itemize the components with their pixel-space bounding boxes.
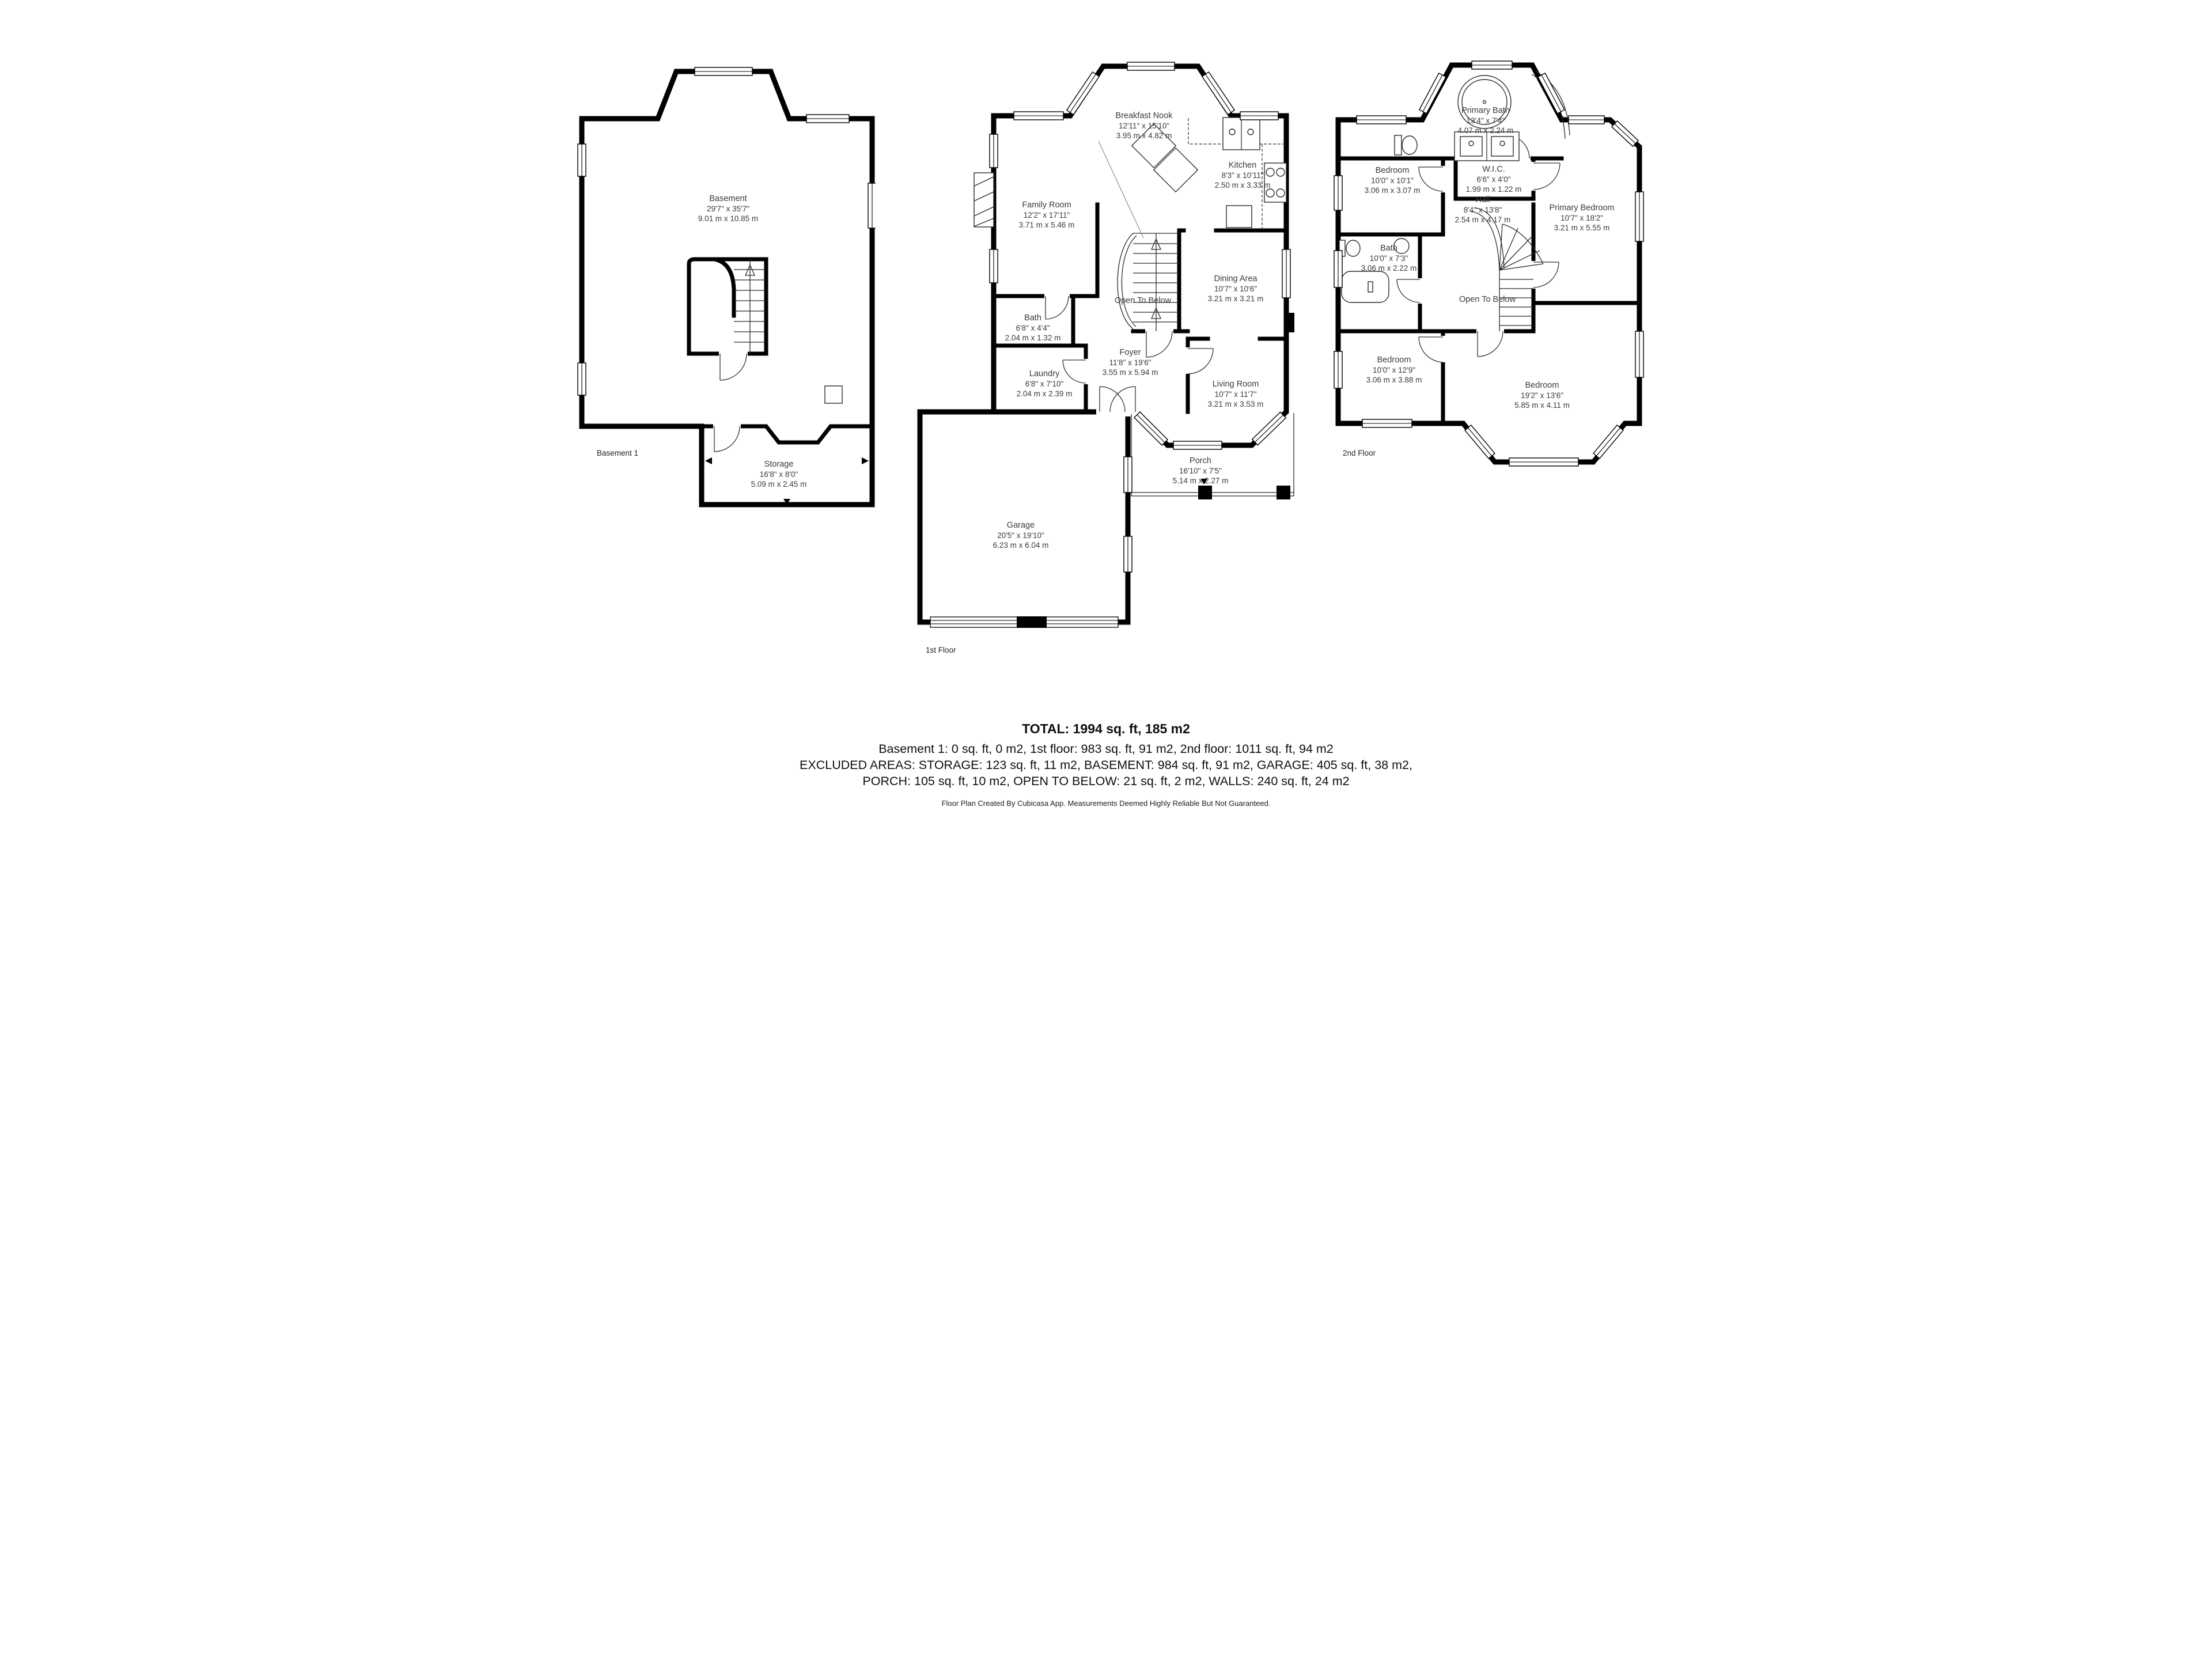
bath2-door-icon (1397, 278, 1423, 304)
toilet-icon (1395, 135, 1417, 155)
room-label-bath-1: Bath 6'8" x 4'4" 2.04 m x 1.32 m (1005, 313, 1061, 343)
room-label-hall: Hall 8'4" x 13'8" 2.54 m x 4.17 m (1455, 195, 1511, 225)
sump-box-icon (825, 386, 842, 403)
fireplace-icon (974, 173, 994, 227)
room-label-primary-bedroom: Primary Bedroom 10'7" x 18'2" 3.21 m x 5… (1550, 203, 1615, 233)
floor-areas-line: Basement 1: 0 sq. ft, 0 m2, 1st floor: 9… (553, 741, 1659, 757)
room-label-open-to-below-1: Open To Below (1115, 296, 1171, 306)
area-summary: TOTAL: 1994 sq. ft, 185 m2 Basement 1: 0… (553, 721, 1659, 808)
storage-door-icon (713, 422, 741, 452)
room-label-bedroom-3: Bedroom 19'2" x 13'6" 5.85 m x 4.11 m (1514, 381, 1570, 410)
room-label-foyer: Foyer 11'8" x 19'6" 3.55 m x 5.94 m (1103, 348, 1158, 377)
room-label-family-room: Family Room 12'2" x 17'11" 3.71 m x 5.46… (1019, 200, 1075, 230)
basement-stairs-icon (734, 259, 766, 354)
excluded-areas-line-1: EXCLUDED AREAS: STORAGE: 123 sq. ft, 11 … (553, 757, 1659, 773)
room-label-dining-area: Dining Area 10'7" x 10'6" 3.21 m x 3.21 … (1208, 274, 1264, 304)
room-label-primary-bath: Primary Bath 13'4" x 7'4" 4.07 m x 2.24 … (1458, 106, 1514, 135)
room-label-laundry: Laundry 6'8" x 7'10" 2.04 m x 2.39 m (1017, 369, 1073, 399)
basement-plan-drawing (576, 63, 876, 513)
total-area-line: TOTAL: 1994 sq. ft, 185 m2 (553, 721, 1659, 737)
basement-stair-door-icon (719, 350, 748, 380)
floorplan-canvas: Basement 29'7" x 35'7" 9.01 m x 10.85 m … (553, 0, 1659, 829)
room-label-open-to-below-2: Open To Below (1459, 295, 1516, 305)
front-double-door-icon (1096, 387, 1139, 416)
room-label-storage: Storage 16'8" x 8'0" 5.09 m x 2.45 m (751, 460, 807, 489)
room-label-bedroom-2: Bedroom 10'0" x 12'9" 3.06 m x 3.88 m (1366, 355, 1422, 385)
room-label-kitchen: Kitchen 8'3" x 10'11" 2.50 m x 3.33 m (1215, 161, 1271, 190)
wic-door-icon (1530, 162, 1560, 191)
excluded-areas-line-2: PORCH: 105 sq. ft, 10 m2, OPEN TO BELOW:… (553, 773, 1659, 789)
room-label-basement: Basement 29'7" x 35'7" 9.01 m x 10.85 m (698, 194, 758, 224)
bedroom-bl-door-icon (1419, 336, 1446, 362)
bedroom-tl-door-icon (1419, 166, 1446, 192)
room-label-garage: Garage 20'5" x 19'10" 6.23 m x 6.04 m (993, 521, 1049, 550)
double-vanity-icon (1455, 132, 1519, 161)
room-label-bath-2: Bath 10'0" x 7'3" 3.06 m x 2.22 m (1361, 244, 1417, 273)
room-label-bedroom-1: Bedroom 10'0" x 10'1" 3.06 m x 3.07 m (1365, 166, 1421, 195)
disclaimer-text: Floor Plan Created By Cubicasa App. Meas… (553, 799, 1659, 808)
first-floor-stairs-icon (1118, 233, 1179, 331)
bathtub-icon (1342, 271, 1389, 302)
room-label-living-room: Living Room 10'7" x 11'7" 3.21 m x 3.53 … (1208, 380, 1264, 409)
bedroom-br-door-icon (1476, 328, 1504, 357)
room-label-porch: Porch 16'10" x 7'5" 5.14 m x 2.27 m (1173, 456, 1229, 486)
fridge-icon (1226, 206, 1252, 228)
floor-label-basement: Basement 1 (597, 449, 638, 457)
room-label-breakfast-nook: Breakfast Nook 12'11" x 15'10" 3.95 m x … (1115, 111, 1172, 141)
room-label-wic: W.I.C. 6'6" x 4'0" 1.99 m x 1.22 m (1466, 165, 1522, 194)
floor-label-second-floor: 2nd Floor (1343, 449, 1376, 457)
living-room-door-icon (1184, 347, 1213, 374)
garage-door-icon (930, 616, 1118, 628)
floor-label-first-floor: 1st Floor (926, 646, 956, 654)
